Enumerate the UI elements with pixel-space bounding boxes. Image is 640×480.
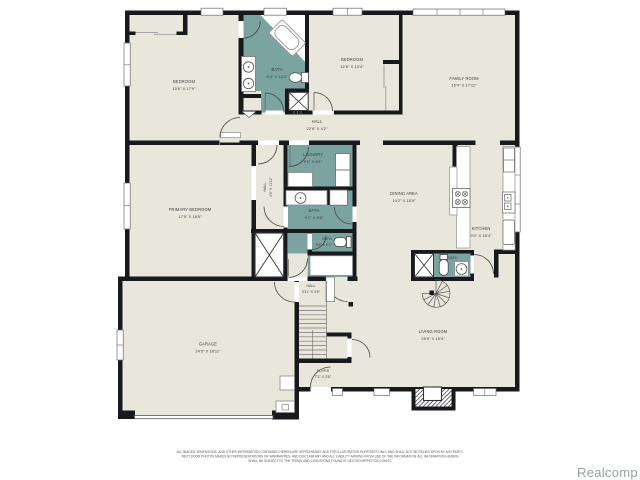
svg-text:3'11" X 3'9": 3'11" X 3'9" xyxy=(302,290,321,294)
svg-text:24'3" X 18'11": 24'3" X 18'11" xyxy=(195,349,221,354)
svg-text:LIVING ROOM: LIVING ROOM xyxy=(419,329,448,334)
svg-text:BATH: BATH xyxy=(271,67,282,72)
svg-text:BEDROOM: BEDROOM xyxy=(341,57,363,62)
svg-text:BATH: BATH xyxy=(322,237,332,241)
svg-text:Realcomp: Realcomp xyxy=(577,465,638,480)
svg-text:PRIMARY BEDROOM: PRIMARY BEDROOM xyxy=(169,207,212,212)
svg-text:12'6" X 13'4": 12'6" X 13'4" xyxy=(340,64,364,69)
svg-text:5'9" X 5'1": 5'9" X 5'1" xyxy=(316,243,333,247)
svg-text:HALL: HALL xyxy=(307,284,316,288)
svg-text:17'5" X 18'5": 17'5" X 18'5" xyxy=(178,214,202,219)
svg-text:22'6" X 4'2": 22'6" X 4'2" xyxy=(306,126,328,131)
svg-text:4'0" X 11'11": 4'0" X 11'11" xyxy=(269,176,273,197)
svg-text:NEXT DOOR PHOTOS MAKES NO REPR: NEXT DOOR PHOTOS MAKES NO REPRESENTATION… xyxy=(182,454,459,458)
svg-text:LAUNDRY: LAUNDRY xyxy=(303,152,323,157)
svg-text:7'1" X 3'5": 7'1" X 3'5" xyxy=(315,375,332,379)
svg-text:25'9" X 15'4": 25'9" X 15'4" xyxy=(421,336,445,341)
svg-text:9'1" X 8'8": 9'1" X 8'8" xyxy=(305,215,324,220)
svg-text:BEDROOM: BEDROOM xyxy=(173,79,195,84)
svg-text:HALL: HALL xyxy=(263,183,267,192)
svg-text:SHALL BE SUBJECT TO THE TERMS: SHALL BE SUBJECT TO THE TERMS AND CONDIT… xyxy=(248,459,392,463)
svg-text:DINING AREA: DINING AREA xyxy=(390,191,418,196)
svg-text:9'1" X 6'1": 9'1" X 6'1" xyxy=(304,159,323,164)
svg-text:16'4" X 17'11": 16'4" X 17'11" xyxy=(451,83,477,88)
svg-text:KITCHEN: KITCHEN xyxy=(472,226,491,231)
svg-text:HALL: HALL xyxy=(312,119,323,124)
svg-text:15'6" X 17'9": 15'6" X 17'9" xyxy=(172,86,196,91)
svg-text:FAMILY ROOM: FAMILY ROOM xyxy=(449,76,479,81)
svg-text:FOYER: FOYER xyxy=(317,369,330,373)
svg-text:BATH: BATH xyxy=(308,208,319,213)
svg-text:14'2" X 18'9": 14'2" X 18'9" xyxy=(392,198,416,203)
svg-text:9'0" X 18'4": 9'0" X 18'4" xyxy=(470,233,492,238)
svg-text:GARAGE: GARAGE xyxy=(199,342,217,347)
svg-text:9'4" X 13'4": 9'4" X 13'4" xyxy=(266,74,288,79)
svg-text:BATH: BATH xyxy=(448,256,458,260)
